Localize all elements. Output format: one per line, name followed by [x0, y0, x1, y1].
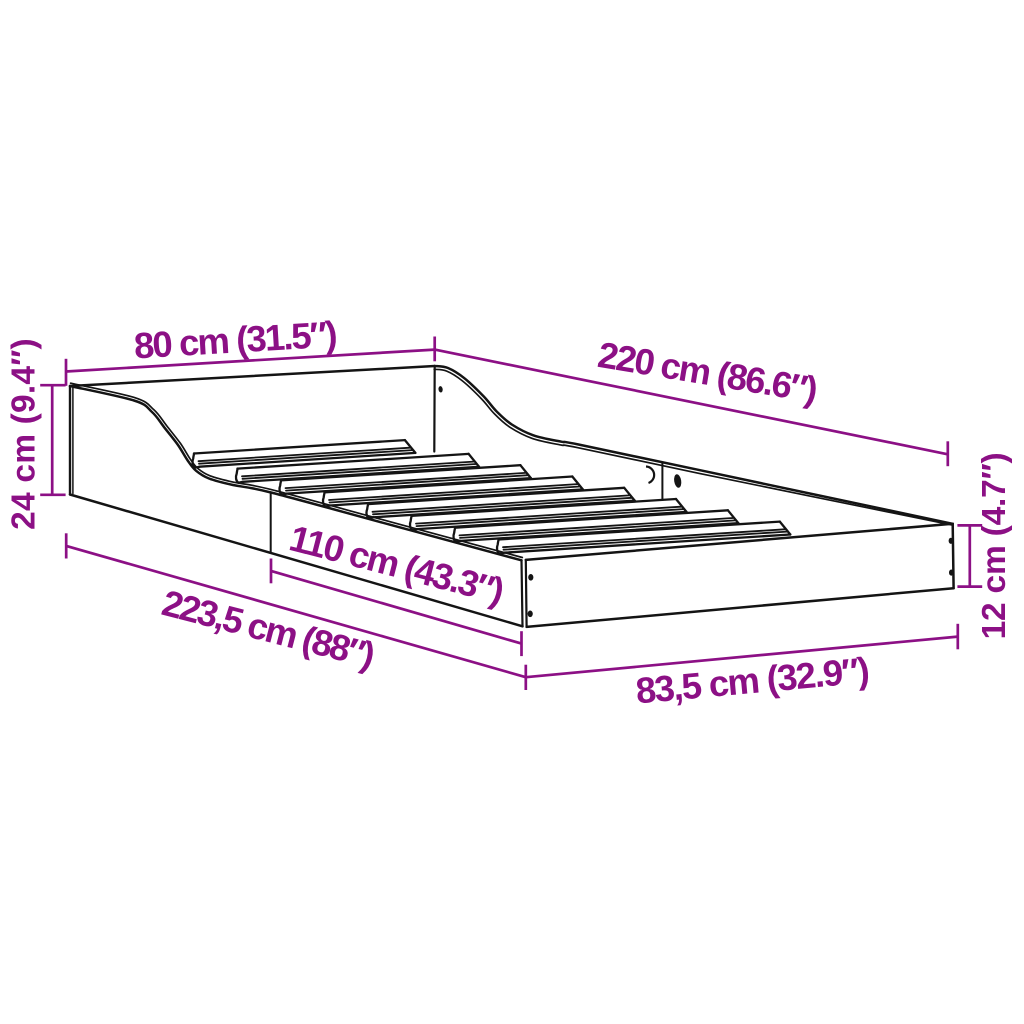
svg-text:12 cm (4.7″): 12 cm (4.7″) [976, 453, 1013, 640]
svg-text:24 cm (9.4″): 24 cm (9.4″) [6, 338, 43, 530]
